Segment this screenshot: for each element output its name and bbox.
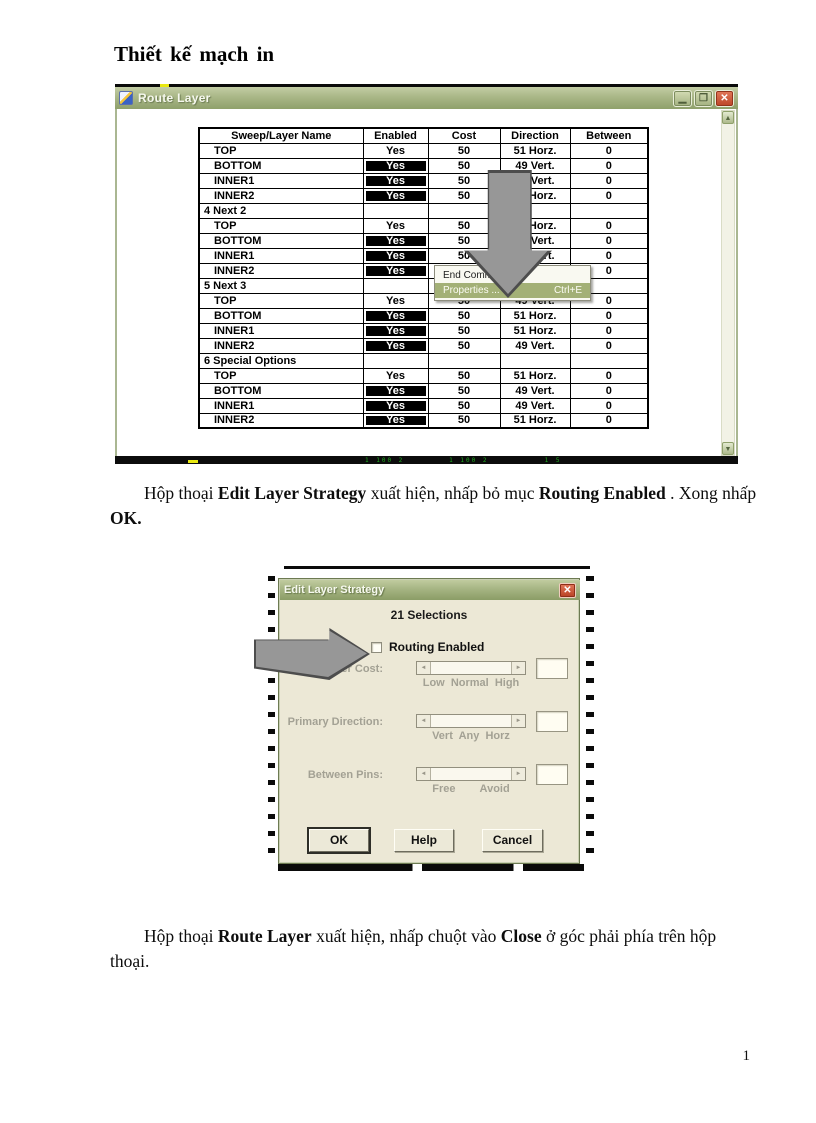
document-page: Thiết kế mạch in Route Layer ▁ ❐ ✕ Sweep… bbox=[0, 0, 816, 1123]
vertical-scrollbar[interactable]: ▲ ▼ bbox=[721, 110, 735, 456]
decorative-ticks-left bbox=[268, 576, 275, 864]
window-controls: ▁ ❐ ✕ bbox=[673, 90, 734, 107]
layer-row[interactable]: TOPYes5051 Horz.0 bbox=[199, 143, 648, 158]
help-button[interactable]: Help bbox=[394, 829, 454, 852]
paragraph-2: Hộp thoại Route Layer xuất hiện, nhấp ch… bbox=[110, 924, 758, 974]
menu-item-shortcut: Ctrl+E bbox=[554, 283, 582, 298]
menu-item-label: Properties ... bbox=[443, 283, 500, 298]
window-bottom-strip: 1 100 2 1 100 2 1 5 bbox=[115, 456, 738, 464]
edit-layer-strategy-dialog: Edit Layer Strategy ✕ 21 Selections Rout… bbox=[278, 578, 580, 864]
column-header: Cost bbox=[428, 128, 500, 143]
layer-row[interactable]: INNER1Yes5049 Vert.0 bbox=[199, 398, 648, 413]
layer-row[interactable]: INNER2Yes5049 Vert.0 bbox=[199, 338, 648, 353]
primary-direction-value-box bbox=[536, 711, 568, 732]
layer-cost-scale: Low Normal High bbox=[413, 677, 529, 689]
layer-row[interactable]: BOTTOMYes5049 Vert.0 bbox=[199, 233, 648, 248]
column-header: Enabled bbox=[363, 128, 428, 143]
selections-count: 21 Selections bbox=[279, 608, 579, 622]
slider-right-icon: ► bbox=[511, 662, 525, 674]
slider-right-icon: ► bbox=[511, 715, 525, 727]
primary-direction-label: Primary Direction: bbox=[283, 716, 383, 728]
section-row[interactable]: 4 Next 2 bbox=[199, 203, 648, 218]
route-layer-icon bbox=[119, 91, 133, 105]
slider-left-icon: ◄ bbox=[417, 768, 431, 780]
layer-row[interactable]: TOPYes5051 Horz.0 bbox=[199, 368, 648, 383]
dialog-titlebar[interactable]: Edit Layer Strategy ✕ bbox=[280, 580, 580, 600]
page-title: Thiết kế mạch in bbox=[114, 42, 274, 67]
scroll-down-icon[interactable]: ▼ bbox=[722, 442, 734, 455]
between-pins-value-box bbox=[536, 764, 568, 785]
cancel-button[interactable]: Cancel bbox=[482, 829, 543, 852]
layer-row[interactable]: INNER2Yes5051 Horz.0 bbox=[199, 188, 648, 203]
yellow-mark-bottom bbox=[188, 460, 198, 463]
slider-left-icon: ◄ bbox=[417, 715, 431, 727]
layer-row[interactable]: INNER2Yes5051 Horz.0 bbox=[199, 413, 648, 428]
layer-row[interactable]: BOTTOMYes5049 Vert.0 bbox=[199, 158, 648, 173]
dialog-close-button[interactable]: ✕ bbox=[559, 583, 576, 598]
slider-left-icon: ◄ bbox=[417, 662, 431, 674]
page-number: 1 bbox=[720, 1048, 750, 1065]
slider-right-icon: ► bbox=[511, 768, 525, 780]
between-pins-slider: ◄ ► bbox=[416, 767, 526, 781]
route-layer-window: Route Layer ▁ ❐ ✕ Sweep/Layer NameEnable… bbox=[115, 84, 738, 464]
route-layer-titlebar[interactable]: Route Layer ▁ ❐ ✕ bbox=[115, 87, 738, 109]
scroll-up-icon[interactable]: ▲ bbox=[722, 111, 734, 124]
between-pins-scale: Free Avoid bbox=[413, 783, 529, 795]
close-button[interactable]: ✕ bbox=[715, 90, 734, 107]
layer-cost-value-box bbox=[536, 658, 568, 679]
minimize-button[interactable]: ▁ bbox=[673, 90, 692, 107]
column-header: Between bbox=[570, 128, 648, 143]
section-row[interactable]: 6 Special Options bbox=[199, 353, 648, 368]
column-header: Sweep/Layer Name bbox=[199, 128, 363, 143]
paragraph-1: Hộp thoại Edit Layer Strategy xuất hiện,… bbox=[110, 481, 758, 531]
routing-enabled-label: Routing Enabled bbox=[389, 640, 484, 654]
table-header-row: Sweep/Layer NameEnabledCostDirectionBetw… bbox=[199, 128, 648, 143]
dialog-title: Edit Layer Strategy bbox=[284, 584, 384, 596]
layer-row[interactable]: BOTTOMYes5049 Vert.0 bbox=[199, 383, 648, 398]
decorative-line bbox=[284, 566, 590, 569]
layer-row[interactable]: BOTTOMYes5051 Horz.0 bbox=[199, 308, 648, 323]
primary-direction-slider: ◄ ► bbox=[416, 714, 526, 728]
column-header: Direction bbox=[500, 128, 570, 143]
decorative-bottom-bar bbox=[278, 864, 584, 871]
routing-enabled-checkbox[interactable] bbox=[371, 642, 382, 653]
layer-cost-slider: ◄ ► bbox=[416, 661, 526, 675]
window-title: Route Layer bbox=[138, 91, 211, 105]
between-pins-label: Between Pins: bbox=[283, 769, 383, 781]
status-marks: 1 100 2 1 100 2 1 5 bbox=[365, 457, 561, 464]
ok-button[interactable]: OK bbox=[309, 829, 369, 852]
layer-row[interactable]: TOPYes5051 Horz.0 bbox=[199, 218, 648, 233]
maximize-button[interactable]: ❐ bbox=[694, 90, 713, 107]
dialog-screenshot: Edit Layer Strategy ✕ 21 Selections Rout… bbox=[268, 566, 594, 874]
decorative-ticks-right bbox=[586, 576, 594, 864]
layer-row[interactable]: INNER1Yes5049 Vert.0 bbox=[199, 248, 648, 263]
layer-row[interactable]: INNER1Yes5051 Horz.0 bbox=[199, 323, 648, 338]
layer-row[interactable]: INNER1Yes5049 Vert.0 bbox=[199, 173, 648, 188]
primary-direction-scale: Vert Any Horz bbox=[413, 730, 529, 742]
